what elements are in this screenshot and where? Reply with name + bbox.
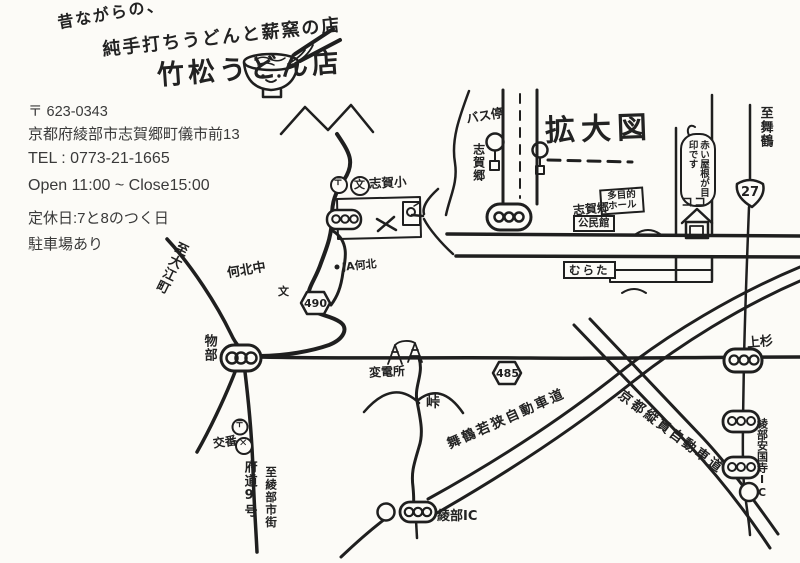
parking-note: 駐車場あり	[28, 233, 103, 254]
traffic-light-monobe	[221, 345, 261, 371]
closed-days: 定休日:7と8のつく日	[28, 207, 169, 228]
main-east-west-road	[259, 357, 800, 358]
winding-road-shigasato	[260, 134, 350, 356]
building-marker	[403, 202, 420, 225]
traffic-light-ankokuji	[723, 457, 759, 478]
school-mark-junior-high: 文	[278, 286, 289, 298]
inset-bridge-mark-2	[622, 289, 646, 293]
shop-house-icon	[682, 209, 712, 238]
to-ayabe-city-label: 至綾部市街	[265, 466, 277, 529]
address: 京都府綾部市志賀郷町儀市前13	[28, 123, 240, 144]
pref-road9-label: 府道9号	[242, 460, 256, 518]
to-maizuru-label: 至舞鶴	[758, 106, 772, 148]
pass-label: 峠	[426, 396, 440, 411]
police-mark: ✕	[239, 439, 247, 450]
zoom-callout-brace	[412, 189, 453, 254]
phone-number: TEL : 0773-21-1665	[28, 150, 170, 168]
uesugi-label: 上杉	[746, 335, 773, 351]
inset-title-underline	[548, 160, 632, 162]
ayabe-ic-label: 綾部IC	[437, 510, 477, 524]
pass-road	[412, 358, 421, 509]
community-center-label: 公民館	[573, 215, 615, 232]
bridge-x-mark	[377, 217, 396, 231]
traffic-light-route27-mid	[723, 411, 759, 432]
mountains-north	[281, 105, 373, 134]
traffic-light-uesugi	[724, 349, 762, 372]
route-27-number: 27	[740, 185, 760, 200]
building-strip	[610, 270, 712, 282]
substation-label: 変電所	[369, 365, 406, 379]
postal-mark-koban: 〒	[235, 421, 244, 430]
inset-river-curve	[446, 91, 469, 215]
ayabe-ankokuji-ic-label: 綾部安国寺IC	[756, 418, 768, 499]
map-drawing	[0, 0, 800, 563]
monobe-label: 物部	[202, 334, 216, 362]
route-485-number: 485	[494, 367, 521, 380]
mountains-pass	[364, 392, 463, 413]
postal-code: 〒 623-0343	[28, 100, 108, 121]
postal-mark-school: 〒	[333, 178, 343, 189]
route-490-number: 490	[302, 297, 329, 310]
hand-drawn-access-map: 昔ながらの、 純手打ちうどんと薪窯の店 竹松うどん店 〒 623-0343 京都…	[0, 0, 800, 563]
murata-label: むらた	[563, 261, 616, 279]
elementary-school-label: 志賀小	[369, 175, 407, 190]
ayabe-ic-ramp-circle	[378, 504, 395, 521]
ja-dot	[335, 265, 340, 270]
inset-title: 拡大図	[544, 112, 653, 147]
opening-hours: Open 11:00 ~ Close15:00	[28, 177, 210, 195]
district-label: 志賀郷	[472, 143, 485, 182]
here-label: ココ	[681, 196, 707, 209]
power-pylons-icon	[388, 341, 422, 364]
school-mark-elementary: 文	[354, 179, 365, 191]
traffic-light-ayabe-ic	[400, 502, 436, 522]
traffic-light-school	[327, 210, 361, 229]
bus-stop-marker	[487, 134, 504, 171]
traffic-light-inset	[487, 204, 531, 230]
landmark-note: 赤い屋根が目印です	[684, 140, 709, 198]
